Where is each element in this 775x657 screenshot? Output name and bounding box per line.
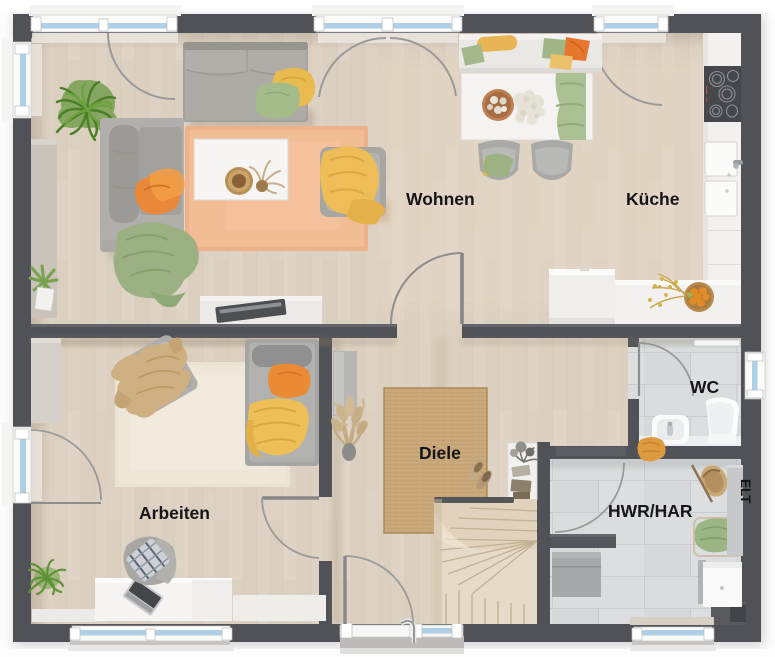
svg-text:ELT: ELT [738, 479, 753, 504]
svg-text:Arbeiten: Arbeiten [139, 503, 210, 523]
svg-text:Küche: Küche [626, 189, 680, 209]
svg-text:HWR/HAR: HWR/HAR [608, 501, 693, 521]
svg-text:Wohnen: Wohnen [406, 189, 475, 209]
svg-text:WC: WC [690, 377, 720, 397]
svg-text:Diele: Diele [419, 443, 461, 463]
